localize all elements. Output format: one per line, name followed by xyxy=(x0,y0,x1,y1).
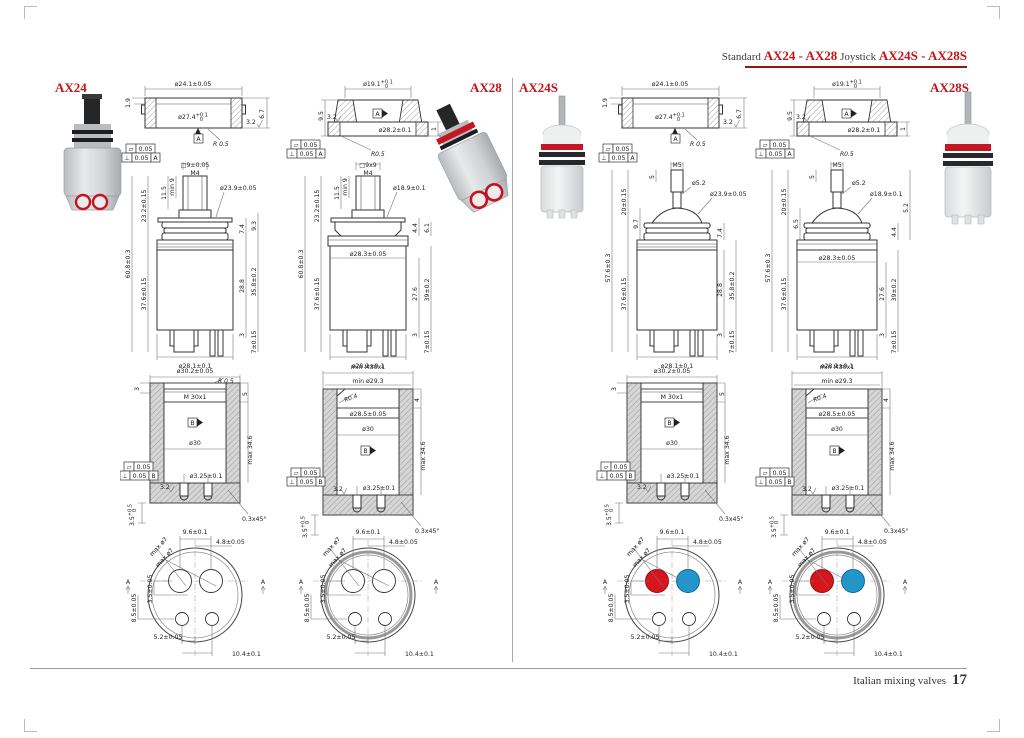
white-body xyxy=(945,167,991,217)
page-footer: Italian mixing valves17 xyxy=(0,672,967,689)
dim-p1: 3 xyxy=(412,333,419,337)
dim-top-dia: min ø29.3 xyxy=(352,378,383,385)
tol-minus: 0 xyxy=(677,117,680,123)
dim-top-dia: ø24.1±0.05 xyxy=(175,81,212,88)
perp-ref: B xyxy=(787,479,791,486)
section-a-left: A xyxy=(768,579,773,586)
dim-total-h: 60.8±0.3 xyxy=(125,250,132,279)
ax24s-bottom-view: 9.6±0.1 4.8±0.05 max ø7 max ø7 3.5±0.05 … xyxy=(603,529,743,658)
section-a-right: A xyxy=(434,579,439,586)
flatness-icon: ▱ xyxy=(604,464,609,471)
header-rule xyxy=(745,66,967,68)
photo-ax24s xyxy=(522,92,602,220)
dim-p1: 3 xyxy=(239,333,246,337)
dim-c2: 4.4 xyxy=(412,223,419,233)
dim-radius: R0.5 xyxy=(840,151,854,158)
dim-top-dia: ø19.1+0.10 xyxy=(832,80,862,91)
datum-b: B xyxy=(832,448,836,455)
dim-top-dia: min ø29.3 xyxy=(821,378,852,385)
dim-top-dia: ø30.2±0.05 xyxy=(177,368,214,375)
dim-base-dia: ø28.2±0.1 xyxy=(848,127,881,134)
flatness-val: 0.05 xyxy=(773,142,787,149)
dim-bore: ø30 xyxy=(362,426,374,433)
dim-half-pitch: 4.8±0.05 xyxy=(389,539,418,546)
crop-mark xyxy=(24,6,37,19)
val: ø27.4 xyxy=(178,114,196,121)
dim-half-pitch: 4.8±0.05 xyxy=(858,539,887,546)
footer-rule xyxy=(30,668,967,669)
dim-collar-dia: ø23.9±0.05 xyxy=(220,185,257,192)
dim-w2: 10.4±0.1 xyxy=(709,651,738,658)
ax28-bottom-view: 9.6±0.1 4.8±0.05 max ø7 max ø7 3.5±0.05 … xyxy=(299,529,439,658)
svg-defs xyxy=(0,0,10,10)
cold-hole xyxy=(842,570,865,593)
dim-depth: max 34.6 xyxy=(420,441,427,470)
dim-chamfer: 0.3x45° xyxy=(415,527,439,535)
dim-collar-dia: ø18.9±0.1 xyxy=(870,191,903,198)
tolerance-frame: ▱ 0.05 ⊥ 0.05 B xyxy=(597,462,635,480)
ax24-side-view: □9±0.05 M4 min 9 11.5 ø23.9±0.05 23.2±0.… xyxy=(125,162,258,370)
dim-v1: 3.5±0.05 xyxy=(624,575,631,604)
dim-p1: 3 xyxy=(717,333,724,337)
perp-val: 0.05 xyxy=(300,479,314,486)
dim-b1: 28.8 xyxy=(717,283,724,297)
dim-w1: 5.2±0.05 xyxy=(631,634,660,641)
header-joystick-models: AX24S - AX28S xyxy=(879,48,967,63)
o-ring xyxy=(72,130,113,134)
dim-w1: 5.2±0.05 xyxy=(327,634,356,641)
dim-bore: ø30 xyxy=(666,440,678,447)
dim-lip: 3 xyxy=(134,387,141,391)
ax28s-side-view: M5 5 ø5.2 ø18.9±0.1 ø28.3±0.05 20±0.15 6… xyxy=(765,162,910,370)
section-a-right: A xyxy=(903,579,908,586)
dim-v2: 8.5±0.05 xyxy=(773,594,780,623)
dim-stem: □9±0.05 xyxy=(181,162,210,169)
dim-half-pitch: 4.8±0.05 xyxy=(216,539,245,546)
val: 3.5 xyxy=(302,528,309,538)
dim-height: 6.7 xyxy=(736,109,743,119)
dim-lip: 1.9 xyxy=(602,98,609,108)
dim-lip: 4 xyxy=(414,398,421,402)
dim-b1: 27.6 xyxy=(412,287,419,301)
dim-radius: R 0.5 xyxy=(690,141,706,148)
dim-half-pitch: 4.8±0.05 xyxy=(693,539,722,546)
tolerance-frame: ▱ 0.05 ⊥ 0.05 A xyxy=(287,140,325,158)
ax24s-cartridge-photo xyxy=(539,96,585,218)
flatness-val: 0.05 xyxy=(773,470,787,477)
val: ø27.4 xyxy=(655,114,673,121)
header-joystick-label: Joystick xyxy=(840,51,876,63)
dim-b1: 28.8 xyxy=(239,279,246,293)
val: 3.5 xyxy=(129,516,136,526)
dim-finish: 3.2 xyxy=(796,114,806,121)
dim-top-dia: ø30.2±0.05 xyxy=(654,368,691,375)
flatness-icon: ▱ xyxy=(763,470,768,477)
header-standard-label: Standard xyxy=(722,51,761,63)
dim-w1: 5.2±0.05 xyxy=(154,634,183,641)
ax24s-side-view: M5 5 ø5.2 ø23.9±0.05 20±0.15 9.7 57.6±0.… xyxy=(605,162,747,370)
ax28s-cartridge-photo xyxy=(943,92,993,224)
dim-bore: ø30 xyxy=(831,426,843,433)
flatness-val: 0.05 xyxy=(139,146,153,153)
perp-val: 0.05 xyxy=(769,479,783,486)
dim-holes: ø3.25±0.1 xyxy=(190,473,223,480)
dim-bore: ø30 xyxy=(189,440,201,447)
dim-finish: 3.2 xyxy=(333,486,343,493)
dim-top-thread: min M30x1 xyxy=(351,364,386,371)
dim-counter-dia: ø28.5±0.05 xyxy=(350,411,387,418)
dim-stem-h: 5 xyxy=(809,175,816,179)
val: 3.5 xyxy=(771,528,778,538)
cold-hole xyxy=(200,570,223,593)
tolerance-frame: ▱ 0.05 ⊥ 0.05 A xyxy=(122,144,160,162)
dim-v1: 3.5±0.05 xyxy=(147,575,154,604)
dim-v2: 8.5±0.05 xyxy=(131,594,138,623)
dim-v1: 3.5±0.05 xyxy=(320,575,327,604)
dim-radius: R 0.5 xyxy=(213,141,229,148)
dim-depth: max 34.6 xyxy=(247,435,254,464)
tolerance-frame: ▱ 0.05 ⊥ 0.05 B xyxy=(756,468,794,486)
ax24-cartridge-photo xyxy=(64,94,121,210)
dim-foot: 3.5+0.50 xyxy=(301,516,312,538)
dim-radius: R0.5 xyxy=(371,151,385,158)
dim-pitch: 9.6±0.1 xyxy=(183,529,208,536)
dim-min-len: min 9 xyxy=(169,178,176,196)
crop-mark xyxy=(24,719,37,732)
ax24-flange-detail: ø24.1±0.05 ø27.4+0.10 1.9 6.7 3.2 A R 0.… xyxy=(122,81,270,162)
dim-c1: 6.1 xyxy=(424,223,431,233)
perp-icon: ⊥ xyxy=(289,151,294,158)
val: ø19.1 xyxy=(363,81,381,88)
tol-minus: 0 xyxy=(385,84,388,90)
dim-w2: 10.4±0.1 xyxy=(874,651,903,658)
cold-hole xyxy=(373,570,396,593)
dim-p1: 3 xyxy=(879,333,886,337)
photo-ax28s xyxy=(922,88,1014,228)
ax28-flange-detail: ø19.1+0.10 A 9.5 3.2 ø28.2±0.1 1 R0.5 ▱ … xyxy=(287,80,441,159)
dim-w1: 5.2±0.05 xyxy=(796,634,825,641)
cold-port xyxy=(93,195,107,209)
dim-holes: ø3.25±0.1 xyxy=(667,473,700,480)
label-ax28: AX28 xyxy=(470,80,502,96)
red-ring xyxy=(945,144,991,151)
dim-c1: 7.4 xyxy=(717,228,724,238)
dim-mid-h: 9.7 xyxy=(633,219,640,229)
ax24-bottom-view: 9.6±0.1 4.8±0.05 max ø7 max ø7 3.5±0.05 … xyxy=(126,529,266,658)
dim-top-thread: min M30x1 xyxy=(820,364,855,371)
perp-ref: B xyxy=(151,473,155,480)
dim-top-dia: ø19.1+0.10 xyxy=(363,80,393,91)
dim-b1: 27.6 xyxy=(879,287,886,301)
ax24s-drawings: ø24.1±0.05 ø27.4+0.10 1.9 6.7 3.2 A R 0.… xyxy=(592,78,764,670)
flatness-icon: ▱ xyxy=(294,470,299,477)
datum-b: B xyxy=(363,448,367,455)
dim-chamfer: 0.3x45° xyxy=(719,515,743,523)
dim-top-dia: ø24.1±0.05 xyxy=(652,81,689,88)
dim-edge: 1 xyxy=(431,127,438,131)
dim-lip: 4 xyxy=(883,398,890,402)
metal-pin xyxy=(965,92,971,126)
datum-b: B xyxy=(190,420,194,427)
dim-upper-h: 20±0.15 xyxy=(781,189,788,216)
metal-pin xyxy=(559,96,565,128)
white-body xyxy=(541,166,583,212)
section-a-left: A xyxy=(126,579,131,586)
dim-w2: 10.4±0.1 xyxy=(232,651,261,658)
dim-body-h: 37.6±0.15 xyxy=(314,278,321,311)
dim-p2: 7±0.15 xyxy=(891,330,898,353)
tol-minus: 0 xyxy=(305,521,311,524)
header-standard-models: AX24 - AX28 xyxy=(764,48,838,63)
perp-icon: ⊥ xyxy=(122,473,127,480)
dim-thread: M5 xyxy=(672,162,681,169)
tolerance-frame: ▱ 0.05 ⊥ 0.05 B xyxy=(287,468,325,486)
tol-minus: 0 xyxy=(774,521,780,524)
dim-pitch: 9.6±0.1 xyxy=(660,529,685,536)
dim-stem-h: 11.5 xyxy=(161,186,168,200)
dim-stem: □9x9 xyxy=(359,162,376,169)
flatness-icon: ▱ xyxy=(129,146,134,153)
dim-holes: ø3.25±0.1 xyxy=(832,485,865,492)
dim-finish: 3.2 xyxy=(637,484,647,491)
dim-body-h: 37.6±0.15 xyxy=(781,278,788,311)
dim-collar-dia: ø18.9±0.1 xyxy=(393,185,426,192)
dim-height: 9.5 xyxy=(787,111,794,121)
section-a-right: A xyxy=(261,579,266,586)
crop-mark xyxy=(987,719,1000,732)
datum-b: B xyxy=(667,420,671,427)
perp-icon: ⊥ xyxy=(599,473,604,480)
dim-finish: 3.2 xyxy=(246,119,256,126)
dim-v1: 3.5±0.05 xyxy=(789,575,796,604)
dim-finish: 3.2 xyxy=(723,119,733,126)
tolerance-frame: ▱ 0.05 ⊥ 0.05 A xyxy=(599,144,637,162)
flatness-val: 0.05 xyxy=(614,464,628,471)
dim-p2: 7±0.15 xyxy=(251,330,258,353)
dim-total-h: 57.6±0.3 xyxy=(605,254,612,283)
dim-stem-h: 5 xyxy=(649,175,656,179)
perp-val: 0.05 xyxy=(300,151,314,158)
perp-icon: ⊥ xyxy=(758,151,763,158)
dim-foot: 3.5+0.50 xyxy=(770,516,781,538)
ax28-side-view: □9x9 M4 min 9 11.5 ø18.9±0.1 ø28.3±0.05 … xyxy=(298,162,431,370)
ax28s-drawings: ø19.1+0.10 A 9.5 3.2 ø28.2±0.1 1 R0.5 ▱ … xyxy=(752,78,927,670)
footer-text: Italian mixing valves xyxy=(853,675,946,687)
perp-icon: ⊥ xyxy=(601,155,606,162)
dim-finish: 3.2 xyxy=(327,114,337,121)
perp-ref: B xyxy=(318,479,322,486)
ax28-drawings: ø19.1+0.10 A 9.5 3.2 ø28.2±0.1 1 R0.5 ▱ … xyxy=(283,78,458,670)
dim-chamfer: 0.3x45° xyxy=(884,527,908,535)
perp-ref: B xyxy=(628,473,632,480)
dim-p2: 7±0.15 xyxy=(424,330,431,353)
dim-edge: 1 xyxy=(900,127,907,131)
dim-lip: 3 xyxy=(611,387,618,391)
flatness-icon: ▱ xyxy=(606,146,611,153)
dim-c2: 4.4 xyxy=(891,227,898,237)
tol-minus: 0 xyxy=(609,509,615,512)
dim-foot: 3.5+0.50 xyxy=(128,504,139,526)
perp-icon: ⊥ xyxy=(289,479,294,486)
dim-foot: 3.5+0.50 xyxy=(605,504,616,526)
perp-val: 0.05 xyxy=(612,155,626,162)
dim-lip: 1.9 xyxy=(125,98,132,108)
dim-body-dia: ø28.3±0.05 xyxy=(819,255,856,262)
dim-thread: M 30x1 xyxy=(661,394,684,401)
section-a-left: A xyxy=(603,579,608,586)
perp-val: 0.05 xyxy=(769,151,783,158)
gray-body xyxy=(64,148,121,196)
page-header: Standard AX24 - AX28 Joystick AX24S - AX… xyxy=(0,48,967,64)
dim-finish: 3.2 xyxy=(802,486,812,493)
dim-depth: max 34.6 xyxy=(889,441,896,470)
flatness-icon: ▱ xyxy=(127,464,132,471)
dim-finish: 3.2 xyxy=(160,484,170,491)
dim-total-h: 60.8±0.3 xyxy=(298,250,305,279)
ax28s-flange-detail: ø19.1+0.10 A 9.5 3.2 ø28.2±0.1 1 R0.5 ▱ … xyxy=(756,80,910,159)
ax28s-section-view: min M30x1 min ø29.3 R0.4 4 ø28.5±0.05 ø3… xyxy=(756,364,908,538)
dim-w2: 10.4±0.1 xyxy=(405,651,434,658)
dim-body-h: 37.6±0.15 xyxy=(621,278,628,311)
ax28s-bottom-view: 9.6±0.1 4.8±0.05 max ø7 max ø7 3.5±0.05 … xyxy=(768,529,908,658)
dim-height: 6.7 xyxy=(259,109,266,119)
dim-collar-dia: ø23.9±0.05 xyxy=(710,191,747,198)
flatness-icon: ▱ xyxy=(763,142,768,149)
dim-counter-dia: ø28.5±0.05 xyxy=(819,411,856,418)
tolerance-frame: ▱ 0.05 ⊥ 0.05 B xyxy=(120,462,158,480)
column-divider xyxy=(512,78,513,662)
perp-icon: ⊥ xyxy=(758,479,763,486)
crop-mark xyxy=(987,6,1000,19)
ax24-drawings: ø24.1±0.05 ø27.4+0.10 1.9 6.7 3.2 A R 0.… xyxy=(120,78,280,670)
flatness-val: 0.05 xyxy=(616,146,630,153)
dim-b2: 39±0.2 xyxy=(424,278,431,301)
section-a-right: A xyxy=(738,579,743,586)
perp-val: 0.05 xyxy=(135,155,149,162)
perp-val: 0.05 xyxy=(610,473,624,480)
dim-height: 9.5 xyxy=(318,111,325,121)
flatness-val: 0.05 xyxy=(304,142,318,149)
dim-pitch: 9.6±0.1 xyxy=(356,529,381,536)
dim-p2: 7±0.15 xyxy=(729,330,736,353)
o-ring xyxy=(943,161,993,166)
o-ring xyxy=(72,138,113,142)
dim-upper-h: 23.2±0.15 xyxy=(141,190,148,223)
o-ring xyxy=(943,153,993,158)
dim-mid-h: 6.5 xyxy=(793,219,800,229)
ax24s-section-view: ø30.2±0.05 3 M 30x1 5 B ø30 max 34.6 ▱ 0… xyxy=(597,368,743,526)
dim-chamfer: 0.3x45° xyxy=(242,515,266,523)
red-ring xyxy=(541,144,583,150)
ax24s-flange-detail: ø24.1±0.05 ø27.4+0.10 1.9 6.7 3.2 A R 0.… xyxy=(599,81,747,162)
dim-depth: max 34.6 xyxy=(724,435,731,464)
flatness-icon: ▱ xyxy=(294,142,299,149)
dim-pitch: 9.6±0.1 xyxy=(825,529,850,536)
tol-minus: 0 xyxy=(200,117,203,123)
dim-stem-dia: ø5.2 xyxy=(852,180,866,187)
dim-c0: 5.2 xyxy=(903,203,910,213)
catalog-page: Standard AX24 - AX28 Joystick AX24S - AX… xyxy=(0,0,1024,738)
ax28-section-view: min M30x1 min ø29.3 R0.4 4 ø28.5±0.05 ø3… xyxy=(287,364,439,538)
tol-minus: 0 xyxy=(854,84,857,90)
flatness-val: 0.05 xyxy=(304,470,318,477)
dim-base-dia: ø28.2±0.1 xyxy=(379,127,412,134)
tolerance-frame: ▱ 0.05 ⊥ 0.05 A xyxy=(756,140,794,158)
dim-thread: M5 xyxy=(832,162,841,169)
dim-upper-h: 20±0.15 xyxy=(621,189,628,216)
dim-b2: 39±0.2 xyxy=(891,278,898,301)
dim-stem-h: 11.5 xyxy=(334,186,341,200)
dim-c2: 9.3 xyxy=(251,221,258,231)
hot-port xyxy=(76,195,90,209)
dim-thread: M 30x1 xyxy=(184,394,207,401)
val: ø19.1 xyxy=(832,81,850,88)
o-ring xyxy=(539,152,585,157)
o-ring xyxy=(539,160,585,165)
dim-v2: 8.5±0.05 xyxy=(304,594,311,623)
dim-c1: 7.4 xyxy=(239,224,246,234)
dim-body-h: 37.6±0.15 xyxy=(141,278,148,311)
flatness-val: 0.05 xyxy=(137,464,151,471)
dim-b2: 35.8±0.2 xyxy=(251,268,258,297)
section-a-left: A xyxy=(299,579,304,586)
ax24-section-view: ø30.2±0.05 R 0.5 3 M 30x1 5 B ø30 max 34… xyxy=(120,368,266,526)
perp-icon: ⊥ xyxy=(124,155,129,162)
cold-hole xyxy=(677,570,700,593)
perp-val: 0.05 xyxy=(133,473,147,480)
dim-holes: ø3.25±0.1 xyxy=(363,485,396,492)
page-number: 17 xyxy=(952,672,967,688)
dim-stem-dia: ø5.2 xyxy=(692,180,706,187)
dim-min-len: min 9 xyxy=(342,178,349,196)
tol-minus: 0 xyxy=(132,509,138,512)
dim-total-h: 57.6±0.3 xyxy=(765,254,772,283)
dim-upper-h: 23.2±0.15 xyxy=(314,190,321,223)
dim-body-dia: ø28.3±0.05 xyxy=(350,251,387,258)
dim-b2: 35.8±0.2 xyxy=(729,272,736,301)
dim-v2: 8.5±0.05 xyxy=(608,594,615,623)
val: 3.5 xyxy=(606,516,613,526)
